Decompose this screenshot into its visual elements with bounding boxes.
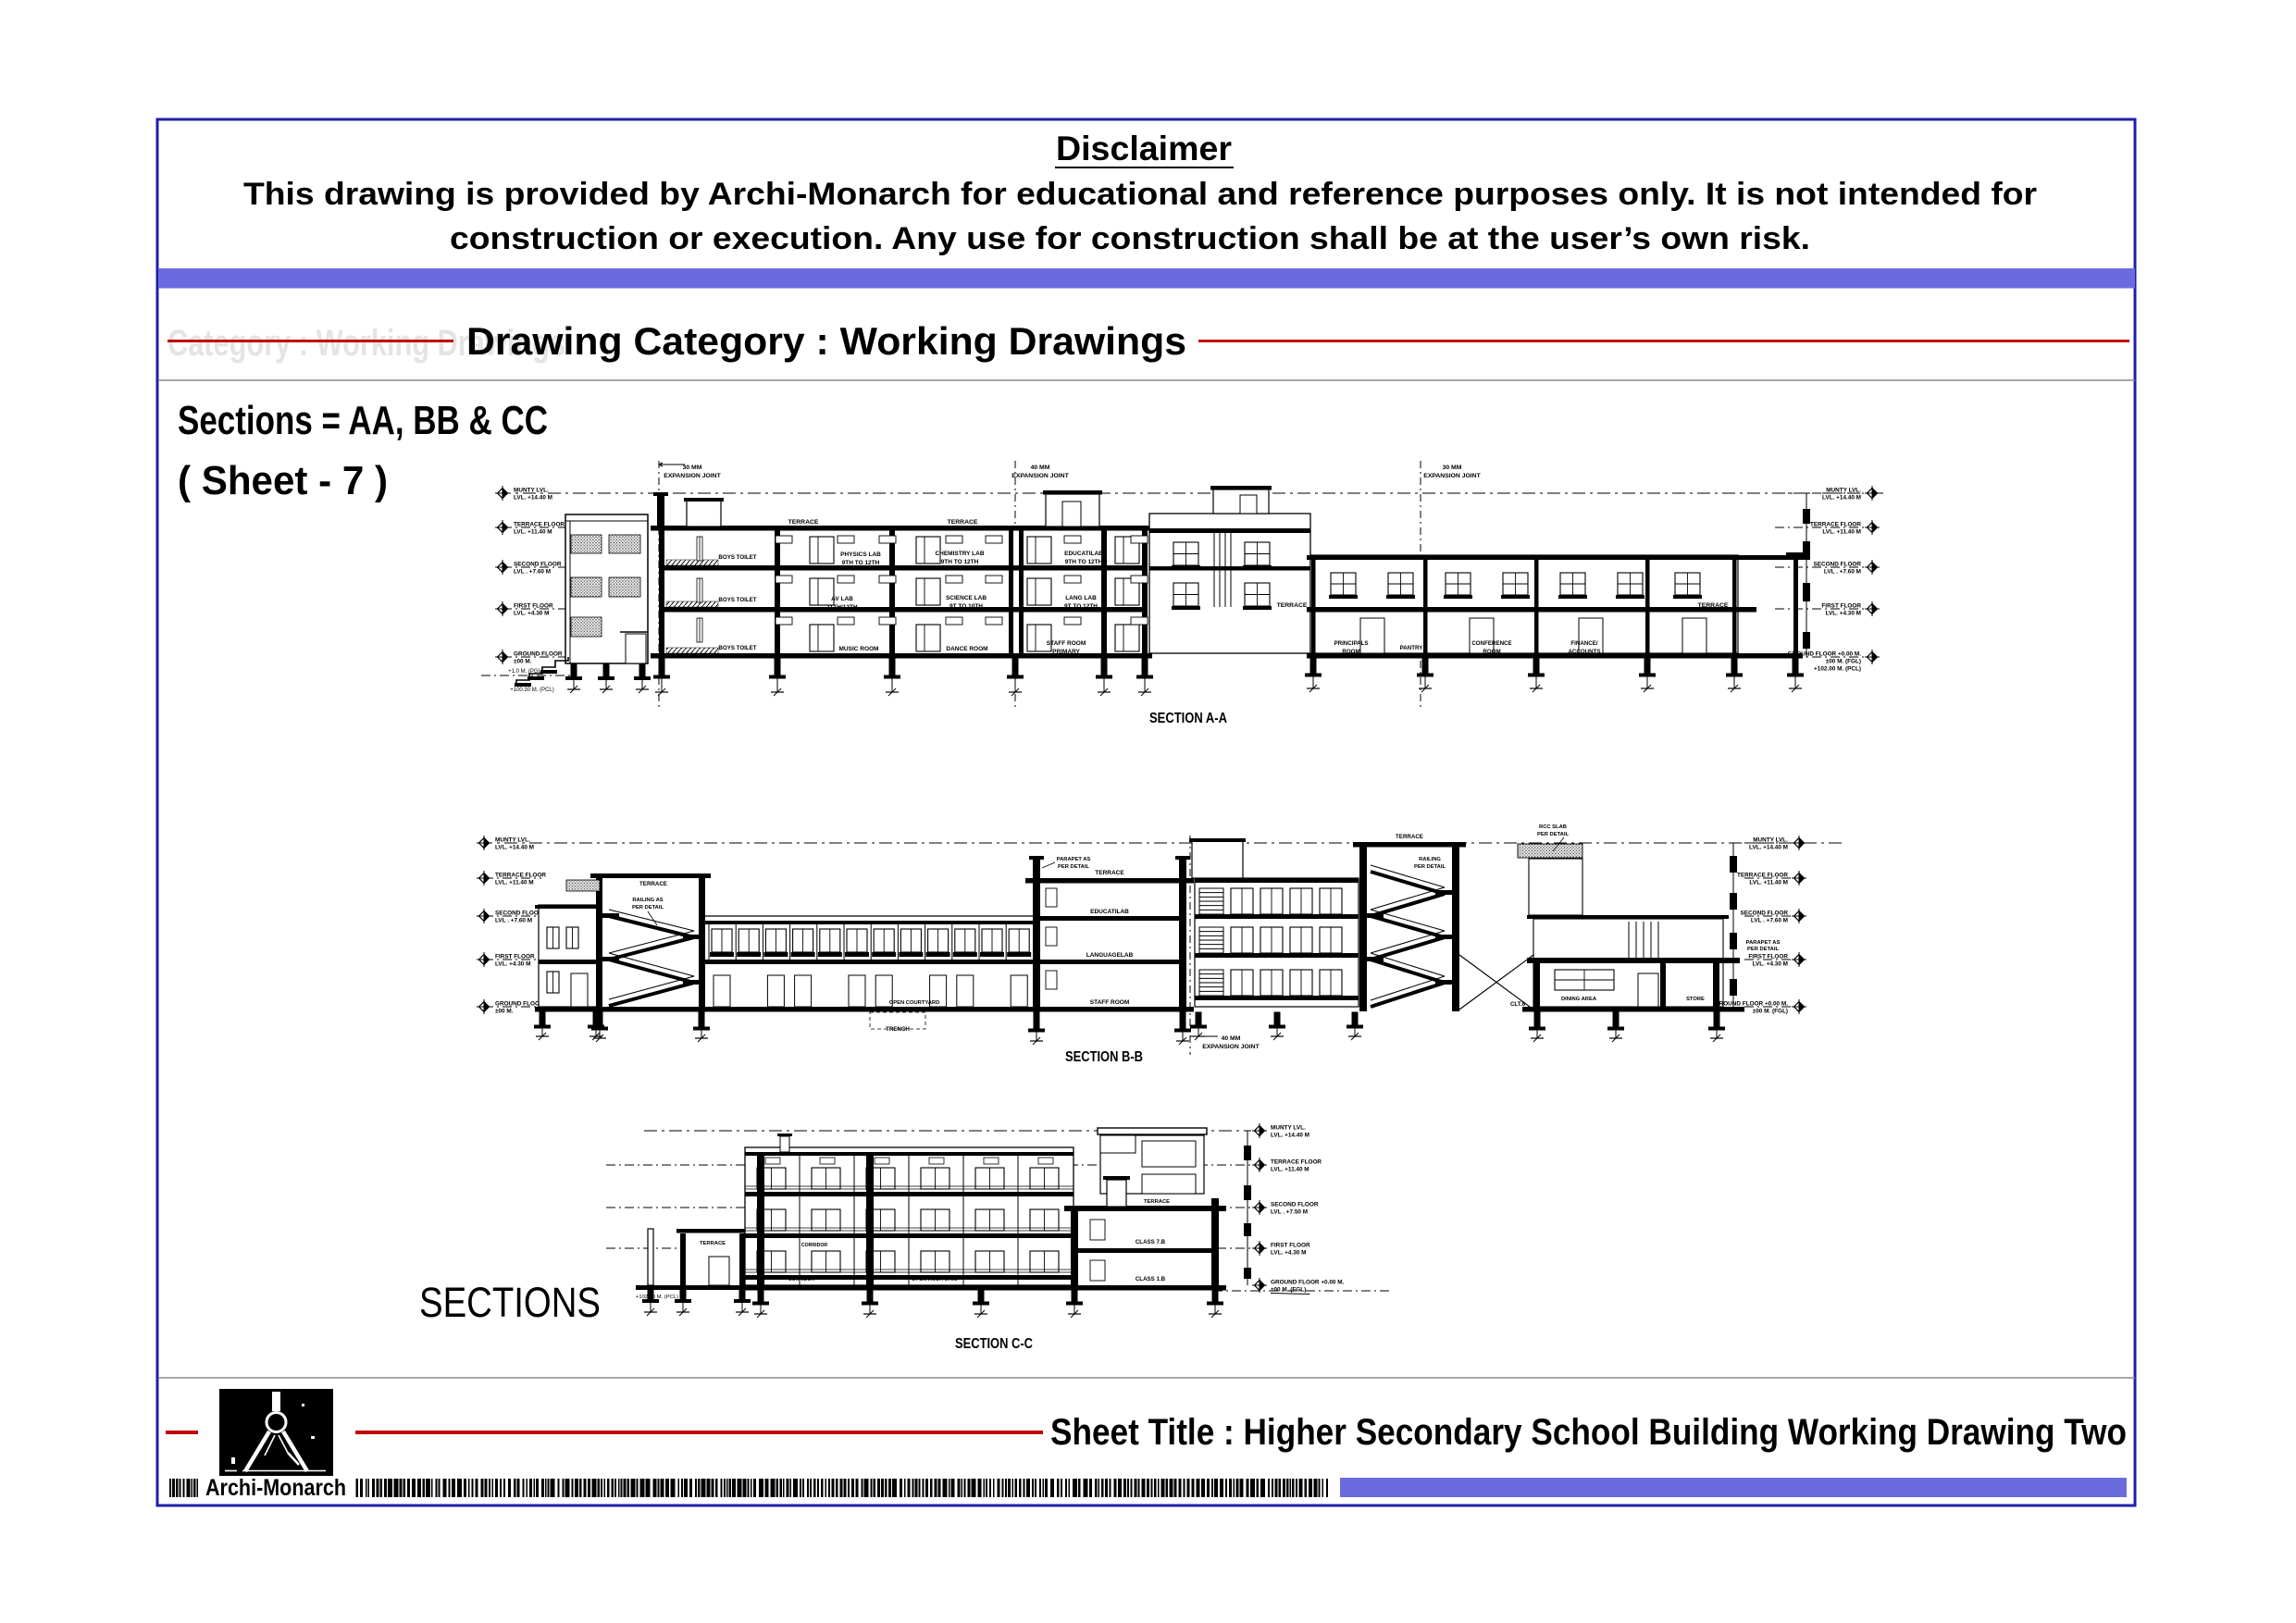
svg-text:LVL. +14.40 M: LVL. +14.40 M (514, 495, 552, 502)
svg-text:MUSIC ROOM: MUSIC ROOM (839, 646, 879, 652)
svg-text:LVL. +14.40 M: LVL. +14.40 M (495, 845, 534, 851)
svg-text:STAFF ROOM: STAFF ROOM (1090, 999, 1130, 1006)
svg-text:CORRIDOR: CORRIDOR (801, 1243, 827, 1248)
svg-text:FIRST FLOOR: FIRST FLOOR (1748, 954, 1788, 960)
svg-text:9T TO 12TH: 9T TO 12TH (1064, 603, 1098, 610)
svg-text:MUNTY LVL.: MUNTY LVL. (1753, 837, 1788, 844)
svg-text:BOYS TOILET: BOYS TOILET (718, 645, 756, 651)
svg-text:9TH TO 12TH: 9TH TO 12TH (941, 559, 979, 565)
svg-text:RCC SLAB: RCC SLAB (1539, 824, 1567, 830)
svg-text:EDUCATILAB: EDUCATILAB (1090, 909, 1129, 915)
svg-text:LVL. +11.40 M: LVL. +11.40 M (1749, 880, 1788, 886)
svg-text:BOYS TOILET: BOYS TOILET (718, 554, 756, 561)
svg-text:GROUND FLOOR +0.00 M.: GROUND FLOOR +0.00 M. (1788, 651, 1862, 658)
svg-text:CORRIDOR: CORRIDOR (788, 1277, 814, 1282)
svg-text:LVL. +14.40 M: LVL. +14.40 M (1271, 1133, 1309, 1139)
svg-text:LVL. +4.30 M: LVL. +4.30 M (1753, 961, 1788, 968)
svg-text:TERRACE FLOOR: TERRACE FLOOR (1271, 1159, 1322, 1166)
svg-text:±00 M.: ±00 M. (514, 659, 532, 665)
svg-text:30 MM: 30 MM (683, 465, 702, 471)
svg-text:±00 M. (FGL): ±00 M. (FGL) (1826, 659, 1861, 665)
svg-text:SECOND FLOOR: SECOND FLOOR (1741, 911, 1789, 917)
svg-text:±00 M. (FGL): ±00 M. (FGL) (1271, 1287, 1306, 1294)
svg-text:GROUND FLOOR +0.00 M.: GROUND FLOOR +0.00 M. (1271, 1280, 1345, 1286)
svg-text:MUNTY LVL.: MUNTY LVL. (1826, 488, 1861, 494)
svg-text:TERRACE: TERRACE (1698, 602, 1729, 609)
svg-text:EXPANSION JOINT: EXPANSION JOINT (664, 473, 721, 479)
svg-text:CLASS 1.B: CLASS 1.B (1136, 1276, 1166, 1282)
svg-text:LVL. +4.30 M: LVL. +4.30 M (1826, 611, 1861, 617)
svg-text:PHYSICS LAB: PHYSICS LAB (840, 551, 881, 558)
svg-text:PER DETAIL: PER DETAIL (1414, 864, 1446, 870)
svg-text:SECTIONS: SECTIONS (419, 1279, 601, 1326)
svg-text:EXPANSION JOINT: EXPANSION JOINT (1423, 473, 1481, 479)
svg-text:BOYS TOILET: BOYS TOILET (718, 597, 756, 603)
svg-text:FIRST FLOOR: FIRST FLOOR (495, 954, 535, 960)
svg-text:+102.00 M. (PCL): +102.00 M. (PCL) (636, 1295, 678, 1300)
svg-text:+1.0 M. (PGL): +1.0 M. (PGL) (508, 669, 543, 675)
svg-text:+102.00 M. (PCL): +102.00 M. (PCL) (1814, 666, 1861, 673)
svg-text:LANG LAB: LANG LAB (1065, 595, 1097, 601)
svg-text:LVL. +11.40 M: LVL. +11.40 M (514, 529, 552, 536)
svg-text:+100.30 M. (PCL): +100.30 M. (PCL) (510, 688, 554, 693)
svg-text:LVL . +7.50 M: LVL . +7.50 M (1271, 1209, 1308, 1216)
svg-text:TERRACE FLOOR: TERRACE FLOOR (495, 873, 546, 879)
svg-text:EXPANSION JOINT: EXPANSION JOINT (1202, 1044, 1260, 1050)
svg-text:STORE: STORE (1686, 997, 1705, 1002)
svg-text:PER DETAIL: PER DETAIL (1058, 864, 1089, 870)
svg-text:GROUND FLOOR +0.00 M.: GROUND FLOOR +0.00 M. (1715, 1001, 1789, 1008)
svg-text:MUNTY LVL.: MUNTY LVL. (514, 488, 549, 494)
svg-text:GROUND FLOOR: GROUND FLOOR (495, 1001, 544, 1008)
svg-text:This drawing is provided by Ar: This drawing is provided by Archi-Monarc… (243, 177, 2037, 212)
svg-text:Drawing Category : Working Dra: Drawing Category : Working Drawings (466, 319, 1186, 363)
svg-text:LVL. +4.30 M: LVL. +4.30 M (495, 961, 530, 968)
svg-text:±00 M. (FGL): ±00 M. (FGL) (1753, 1009, 1788, 1015)
svg-text:RAILING AS: RAILING AS (632, 898, 663, 903)
svg-text:STAFF ROOM: STAFF ROOM (1047, 640, 1086, 647)
svg-text:Sheet Title : Higher Secondary: Sheet Title : Higher Secondary School Bu… (1050, 1412, 2127, 1453)
svg-text:LVL . +7.60 M: LVL . +7.60 M (495, 918, 532, 924)
svg-text:Disclaimer: Disclaimer (1056, 130, 1232, 167)
svg-text:TERRACE FLOOR: TERRACE FLOOR (514, 522, 565, 528)
svg-text:PER DETAIL: PER DETAIL (1747, 947, 1779, 952)
svg-text:EDUCATILAB: EDUCATILAB (1064, 551, 1103, 557)
svg-text:TERRACE: TERRACE (1396, 834, 1423, 840)
svg-text:TERRACE: TERRACE (1144, 1199, 1170, 1205)
svg-text:( Sheet - 7 ): ( Sheet - 7 ) (178, 458, 388, 503)
svg-text:CLASS 7.B: CLASS 7.B (1136, 1239, 1166, 1245)
svg-text:PRINCIPALS: PRINCIPALS (1334, 640, 1368, 647)
svg-text:9T TO 10TH: 9T TO 10TH (949, 603, 983, 610)
svg-text:construction or execution. Any: construction or execution. Any use for c… (450, 221, 1810, 256)
svg-text:40 MM: 40 MM (1222, 1035, 1241, 1042)
svg-text:TERRACE: TERRACE (1095, 870, 1124, 876)
svg-text:PRIMARY: PRIMARY (1052, 649, 1080, 655)
svg-text:CONFERENCE: CONFERENCE (1471, 640, 1511, 647)
svg-text:FIRST FLOOR: FIRST FLOOR (514, 603, 553, 610)
svg-text:9TH TO 12TH: 9TH TO 12TH (1065, 559, 1103, 565)
svg-text:TRENCH: TRENCH (886, 1026, 910, 1033)
svg-text:LVL . +7.60 M: LVL . +7.60 M (514, 569, 551, 576)
svg-text:Archi-Monarch: Archi-Monarch (205, 1475, 346, 1501)
svg-text:LVL. +14.40 M: LVL. +14.40 M (1822, 495, 1861, 502)
svg-text:±00 M.: ±00 M. (495, 1009, 514, 1015)
svg-text:SCIENCE LAB: SCIENCE LAB (946, 595, 987, 601)
svg-text:30 MM: 30 MM (1443, 465, 1462, 471)
svg-text:LVL. +4.30 M: LVL. +4.30 M (1271, 1250, 1306, 1257)
svg-text:MUNTY LVL.: MUNTY LVL. (495, 837, 530, 844)
svg-text:40 MM: 40 MM (1031, 465, 1050, 471)
svg-text:AV LAB: AV LAB (831, 596, 853, 602)
svg-text:LVL. +11.40 M: LVL. +11.40 M (1822, 529, 1861, 536)
svg-text:LVL . +7.60 M: LVL . +7.60 M (1751, 918, 1788, 924)
svg-text:11TH/12TH: 11TH/12TH (826, 604, 858, 611)
svg-text:PANTRY: PANTRY (1400, 645, 1424, 651)
svg-text:TERRACE: TERRACE (788, 519, 819, 526)
svg-text:SECOND FLOOR: SECOND FLOOR (514, 562, 562, 568)
svg-text:DANCE ROOM: DANCE ROOM (946, 646, 987, 652)
svg-text:OPEN COURTYARD: OPEN COURTYARD (889, 1000, 940, 1006)
svg-text:RAILING: RAILING (1419, 857, 1441, 862)
svg-text:SECTION A-A: SECTION A-A (1149, 711, 1227, 726)
svg-text:DINING AREA: DINING AREA (1561, 997, 1597, 1002)
svg-text:LANGUAGELAB: LANGUAGELAB (1086, 952, 1134, 959)
svg-text:SECTION C-C: SECTION C-C (955, 1336, 1033, 1352)
svg-text:LVL . +7.60 M: LVL . +7.60 M (1824, 569, 1861, 576)
svg-text:TERRACE: TERRACE (700, 1241, 726, 1246)
svg-text:FIRST FLOOR: FIRST FLOOR (1821, 603, 1861, 610)
svg-text:LVL. +4.30 M: LVL. +4.30 M (514, 611, 549, 617)
svg-text:TERRACE: TERRACE (639, 881, 667, 887)
svg-text:SECOND FLOOR: SECOND FLOOR (1271, 1202, 1319, 1208)
svg-text:SECOND FLOOR: SECOND FLOOR (1814, 562, 1862, 568)
svg-text:CHEMISTRY LAB: CHEMISTRY LAB (935, 551, 984, 557)
svg-text:FIRST FLOOR: FIRST FLOOR (1271, 1243, 1310, 1249)
svg-text:MUNTY LVL.: MUNTY LVL. (1271, 1125, 1306, 1132)
svg-text:PARAPET AS: PARAPET AS (1746, 940, 1781, 946)
svg-text:SECTION B-B: SECTION B-B (1065, 1049, 1143, 1065)
svg-text:PER DETAIL: PER DETAIL (632, 905, 664, 911)
svg-text:SECOND FLOOR: SECOND FLOOR (495, 911, 543, 917)
svg-text:PARAPET AS: PARAPET AS (1057, 857, 1091, 862)
svg-text:FINANCE/: FINANCE/ (1570, 640, 1597, 647)
svg-text:PER DETAIL: PER DETAIL (1537, 832, 1569, 837)
svg-text:GROUND FLOOR: GROUND FLOOR (514, 651, 563, 658)
svg-text:9TH TO 12TH: 9TH TO 12TH (842, 560, 880, 566)
svg-text:LVL. +14.40 M: LVL. +14.40 M (1749, 845, 1788, 851)
svg-text:TERRACE FLOOR: TERRACE FLOOR (1810, 522, 1861, 528)
svg-text:LVL. +11.40 M: LVL. +11.40 M (495, 880, 534, 886)
svg-text:EXPANSION JOINT: EXPANSION JOINT (1011, 473, 1069, 479)
svg-text:TERRACE: TERRACE (948, 519, 978, 526)
svg-text:TERRACE FLOOR: TERRACE FLOOR (1737, 873, 1788, 879)
svg-text:OPEN AUDITORIO: OPEN AUDITORIO (912, 1277, 959, 1282)
svg-text:TERRACE: TERRACE (1277, 602, 1308, 609)
svg-text:Sections = AA, BB & CC: Sections = AA, BB & CC (178, 398, 548, 443)
svg-text:LVL. +11.40 M: LVL. +11.40 M (1271, 1167, 1309, 1173)
svg-text:CLT.6: CLT.6 (1510, 1001, 1526, 1008)
